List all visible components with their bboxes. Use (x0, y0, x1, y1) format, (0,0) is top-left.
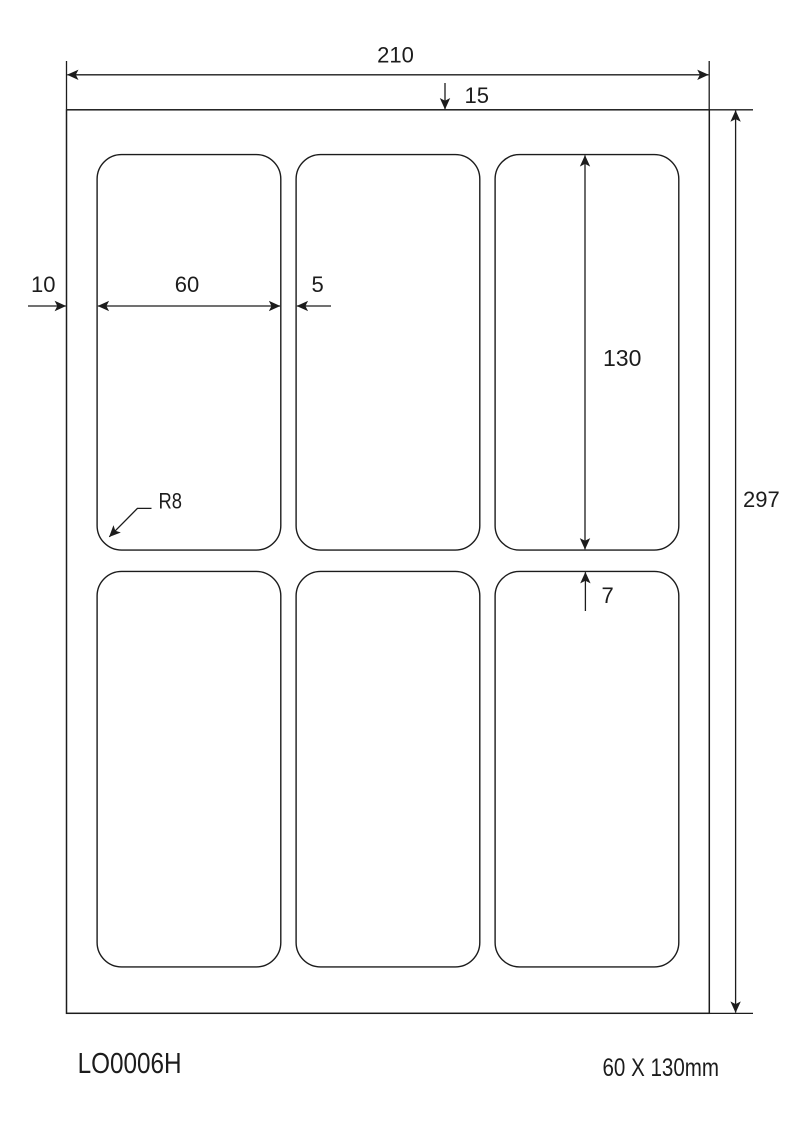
svg-text:130: 130 (603, 345, 641, 371)
svg-text:5: 5 (312, 272, 324, 297)
svg-text:10: 10 (31, 272, 55, 297)
svg-text:7: 7 (602, 583, 614, 608)
svg-text:60: 60 (175, 272, 199, 297)
svg-text:15: 15 (465, 83, 489, 108)
svg-text:R8: R8 (159, 489, 183, 514)
svg-text:LO0006H: LO0006H (78, 1048, 182, 1080)
svg-text:210: 210 (377, 43, 414, 68)
svg-text:297: 297 (743, 487, 780, 512)
svg-text:60 X 130mm: 60 X 130mm (603, 1054, 720, 1082)
